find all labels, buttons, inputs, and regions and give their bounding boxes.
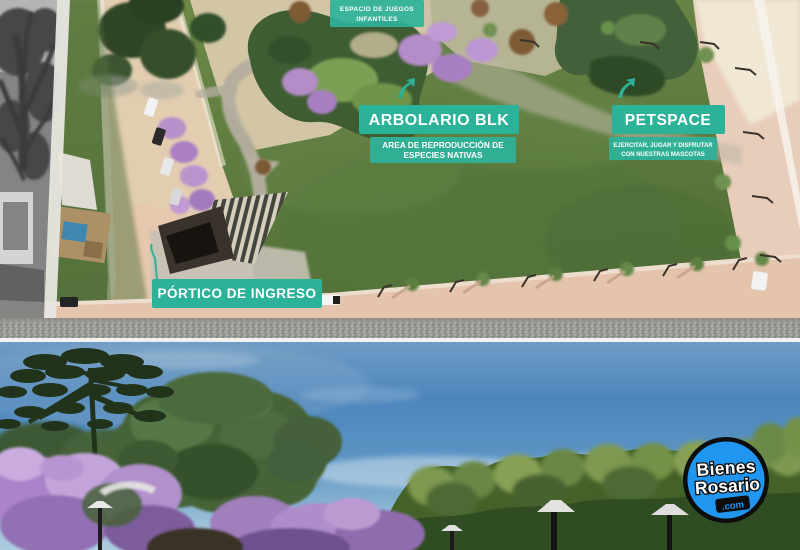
svg-text:ESPECIES NATIVAS: ESPECIES NATIVAS bbox=[404, 150, 483, 160]
svg-text:CON NUESTRAS MASCOTAS: CON NUESTRAS MASCOTAS bbox=[621, 152, 705, 158]
svg-text:EJERCITAR, JUGAR Y DISFRUTAR: EJERCITAR, JUGAR Y DISFRUTAR bbox=[613, 143, 713, 149]
svg-text:ARBOLARIO BLK: ARBOLARIO BLK bbox=[369, 112, 510, 129]
svg-text:PÓRTICO DE INGRESO: PÓRTICO DE INGRESO bbox=[157, 286, 316, 301]
svg-text:ESPACIO DE JUEGOS: ESPACIO DE JUEGOS bbox=[340, 6, 414, 13]
svg-text:PETSPACE: PETSPACE bbox=[625, 112, 711, 129]
svg-text:INFANTILES: INFANTILES bbox=[356, 16, 398, 23]
svg-text:AREA DE REPRODUCCIÓN DE: AREA DE REPRODUCCIÓN DE bbox=[382, 139, 504, 150]
